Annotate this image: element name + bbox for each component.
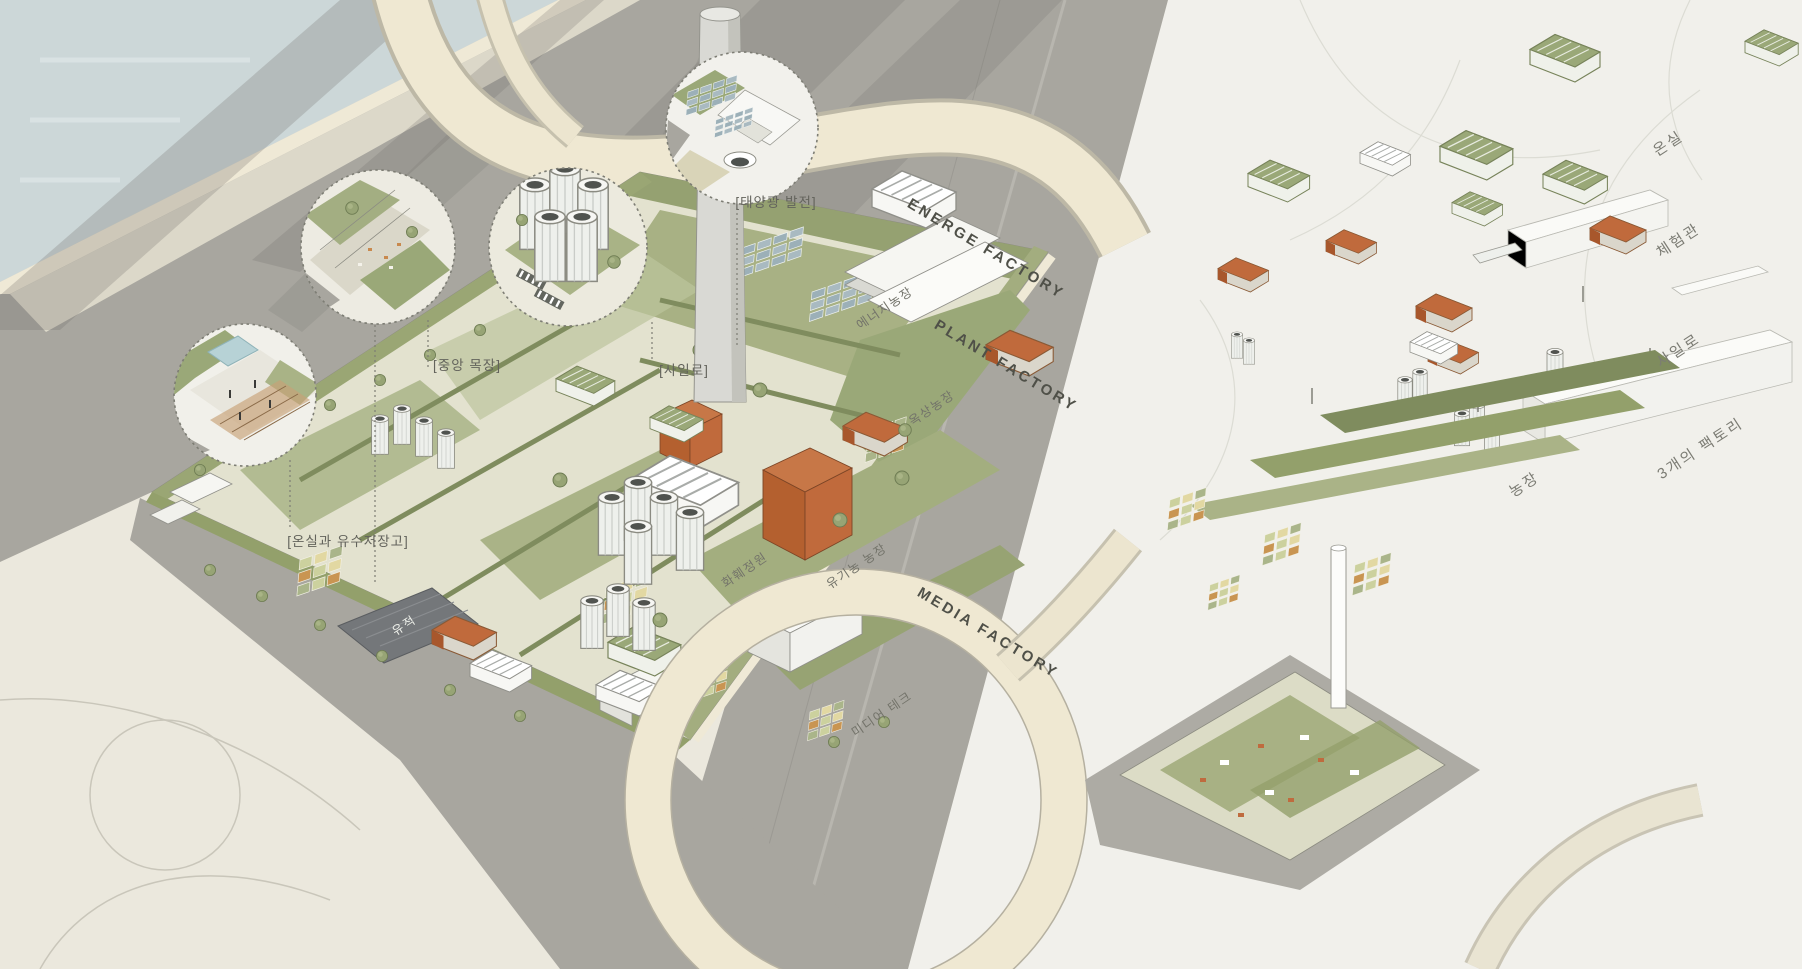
callout-circle-pasture [300, 170, 455, 324]
label-central-pasture-callout: [중앙 목장] [433, 354, 501, 374]
callout-circle-solar [666, 52, 818, 204]
label-silo-callout: [사일로] [659, 359, 709, 379]
label-greenhouse-reservoir-callout: [온실과 유수저장고] [287, 530, 409, 550]
masterplan-canvas: [태양광 발전] [중앙 목장] [사일로] [온실과 유수저장고] ENERG… [0, 0, 1802, 969]
mini-tower-chimney [1331, 548, 1346, 708]
label-solar-power-callout: [태양광 발전] [735, 191, 816, 211]
